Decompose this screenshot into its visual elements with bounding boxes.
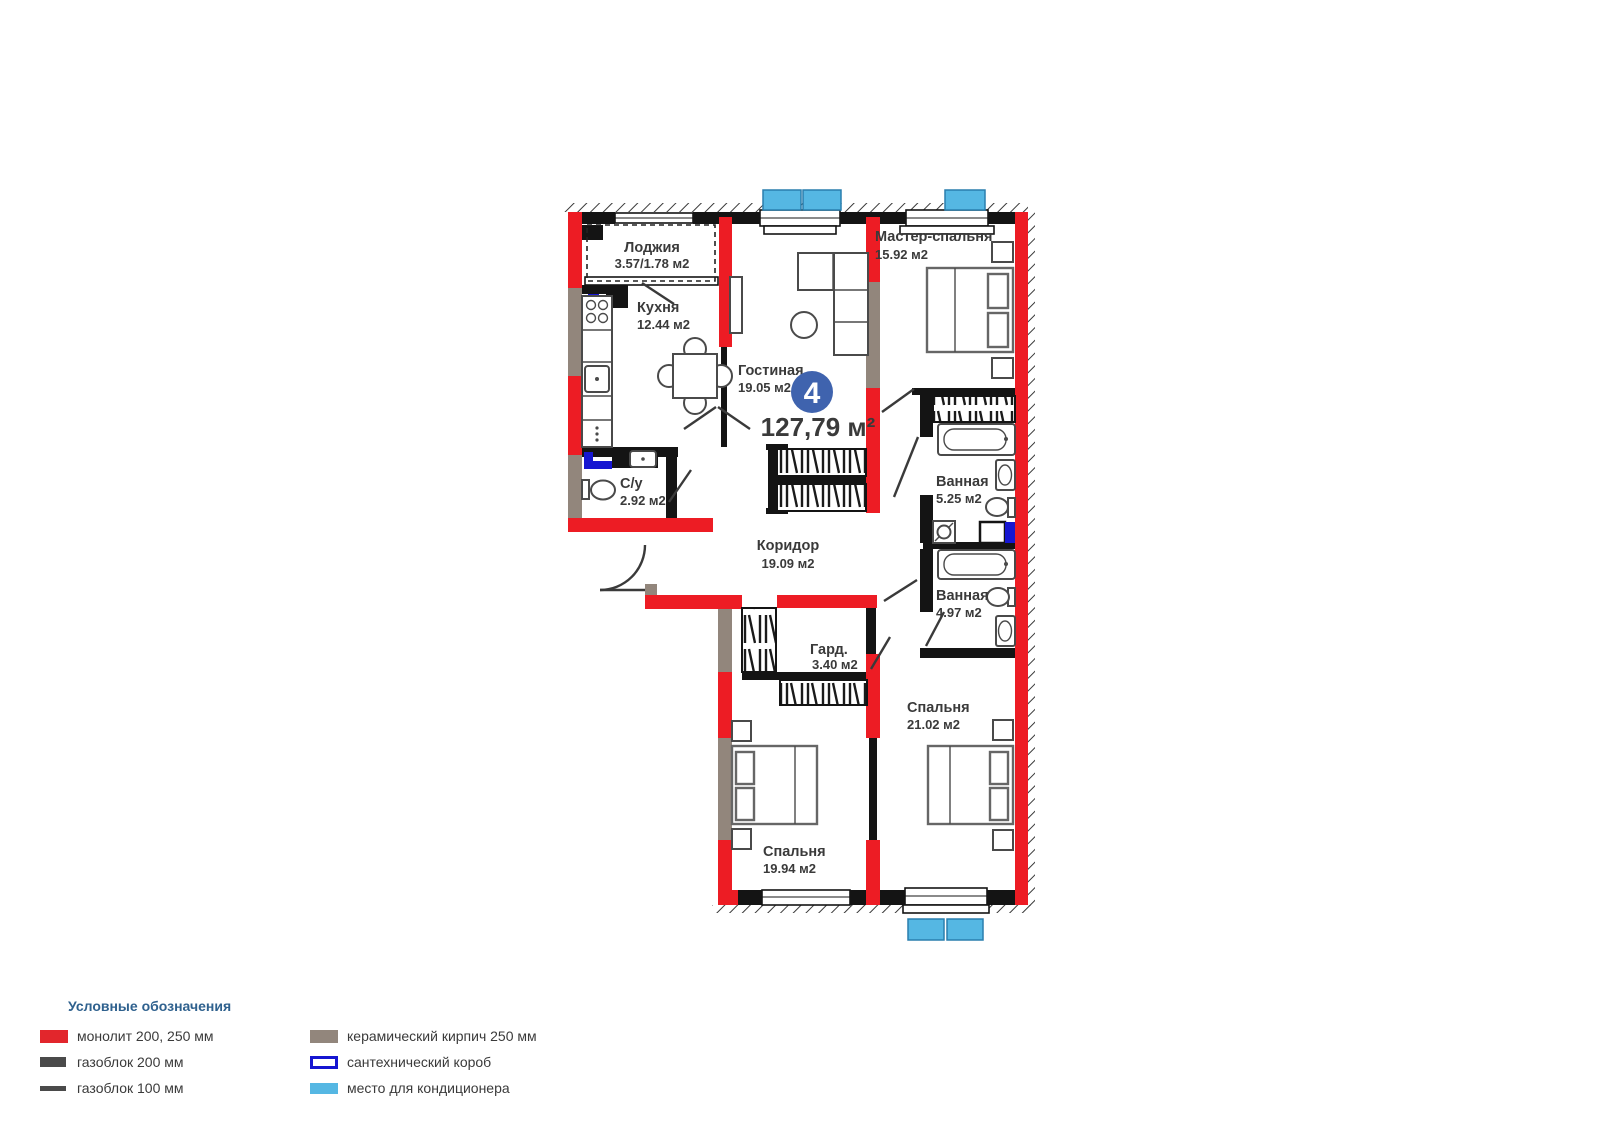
legend-item-label: место для кондиционера bbox=[347, 1080, 510, 1096]
room-area-closet: 3.40 м2 bbox=[812, 657, 858, 672]
sofa-icon bbox=[798, 253, 868, 355]
ac-unit-icon bbox=[908, 919, 944, 940]
wc-sink-icon bbox=[612, 449, 658, 468]
door-swing bbox=[884, 580, 917, 601]
room-area-bedroom-right: 21.02 м2 bbox=[907, 717, 960, 732]
bathtub-icon bbox=[938, 550, 1015, 579]
legend-item-monolith: монолит 200, 250 мм bbox=[40, 1023, 310, 1049]
room-label-wc: С/у bbox=[620, 476, 643, 492]
nightstand-icon bbox=[732, 721, 751, 741]
bed-icon bbox=[732, 746, 817, 824]
legend-grid: монолит 200, 250 мм газоблок 200 мм газо… bbox=[40, 1023, 537, 1101]
nightstand-icon bbox=[992, 242, 1013, 262]
swatch-box bbox=[310, 1083, 338, 1094]
plumbing-box-icon bbox=[980, 522, 1015, 543]
entrance-door-icon bbox=[600, 545, 645, 590]
swatch-box bbox=[40, 1086, 68, 1091]
legend-item-label: керамический кирпич 250 мм bbox=[347, 1028, 537, 1044]
room-label-living: Гостиная bbox=[738, 363, 804, 379]
room-label-bathroom-1: Ванная bbox=[936, 474, 989, 490]
legend-item-ceramic-brick: керамический кирпич 250 мм bbox=[310, 1023, 537, 1049]
legend-title: Условные обозначения bbox=[40, 998, 537, 1014]
floor-plan: Лоджия 3.57/1.78 м2 Кухня 12.44 м2 Гости… bbox=[0, 0, 1600, 1131]
room-label-bedroom-left: Спальня bbox=[763, 844, 826, 860]
room-area-corridor: 19.09 м2 bbox=[762, 556, 815, 571]
bedroom-wardrobe-icon bbox=[780, 680, 867, 705]
toilet-icon bbox=[582, 480, 615, 500]
bathroom-sink-icon bbox=[996, 616, 1015, 646]
room-label-bedroom-right: Спальня bbox=[907, 700, 970, 716]
kitchen-sink-icon bbox=[585, 366, 609, 392]
room-area-master: 15.92 м2 bbox=[875, 247, 928, 262]
monolith-swatch bbox=[40, 1030, 68, 1043]
bathroom-wardrobe-icon bbox=[933, 396, 1015, 422]
gasblock-200-swatch bbox=[40, 1057, 66, 1067]
bathroom-sink-icon bbox=[996, 460, 1015, 490]
legend-item-ac-place: место для кондиционера bbox=[310, 1075, 537, 1101]
bedroom-window-left bbox=[762, 890, 850, 905]
legend-item-label: газоблок 100 мм bbox=[77, 1080, 184, 1096]
room-label-corridor: Коридор bbox=[757, 538, 820, 554]
nightstand-icon bbox=[993, 830, 1013, 850]
room-label-loggia: Лоджия bbox=[624, 240, 680, 256]
tv-stand-icon bbox=[730, 277, 742, 333]
ac-unit-icon bbox=[763, 190, 801, 210]
unit-number: 4 bbox=[804, 377, 821, 410]
loggia-window bbox=[615, 213, 693, 223]
plumbing-box-swatch bbox=[310, 1056, 338, 1069]
coffee-table-icon bbox=[791, 312, 817, 338]
legend-item-plumbing-box: сантехнический короб bbox=[310, 1049, 537, 1075]
room-area-loggia: 3.57/1.78 м2 bbox=[615, 256, 690, 271]
legend-item-label: монолит 200, 250 мм bbox=[77, 1028, 214, 1044]
washing-machine-icon bbox=[933, 521, 955, 543]
master-bed-icon bbox=[927, 268, 1013, 352]
ac-unit-icon bbox=[945, 190, 985, 210]
ac-unit-icon bbox=[947, 919, 983, 940]
nightstand-icon bbox=[732, 829, 751, 849]
ceramic-brick-swatch bbox=[310, 1030, 338, 1043]
room-area-bedroom-left: 19.94 м2 bbox=[763, 861, 816, 876]
room-area-living: 19.05 м2 bbox=[738, 380, 791, 395]
swatch-box bbox=[310, 1056, 338, 1069]
toilet-icon bbox=[986, 498, 1015, 517]
bathtub-icon bbox=[938, 424, 1015, 455]
ac-place-swatch bbox=[310, 1083, 338, 1094]
nightstand-icon bbox=[992, 358, 1013, 378]
room-label-kitchen: Кухня bbox=[637, 300, 679, 316]
room-area-kitchen: 12.44 м2 bbox=[637, 317, 690, 332]
swatch-box bbox=[40, 1057, 68, 1067]
floor-plan-page: Лоджия 3.57/1.78 м2 Кухня 12.44 м2 Гости… bbox=[0, 0, 1600, 1131]
legend-item-label: газоблок 200 мм bbox=[77, 1054, 184, 1070]
room-area-wc: 2.92 м2 bbox=[620, 493, 666, 508]
legend-column-left: монолит 200, 250 мм газоблок 200 мм газо… bbox=[40, 1023, 310, 1101]
legend-column-right: керамический кирпич 250 мм сантехнически… bbox=[310, 1023, 537, 1101]
bed-icon bbox=[928, 746, 1013, 824]
swatch-box bbox=[40, 1030, 68, 1043]
room-label-closet: Гард. bbox=[810, 642, 848, 658]
door-swing bbox=[882, 389, 914, 412]
gasblock-100-swatch bbox=[40, 1086, 66, 1091]
room-label-master: Мастер-спальня bbox=[875, 229, 992, 245]
toilet-icon bbox=[987, 588, 1015, 606]
swatch-box bbox=[310, 1030, 338, 1043]
ac-unit-icon bbox=[803, 190, 841, 210]
nightstand-icon bbox=[993, 720, 1013, 740]
living-room-window bbox=[760, 210, 840, 234]
bedroom-window-right bbox=[903, 888, 989, 913]
legend: Условные обозначения монолит 200, 250 мм… bbox=[40, 998, 537, 1101]
room-area-bathroom-1: 5.25 м2 bbox=[936, 491, 982, 506]
room-label-bathroom-2: Ванная bbox=[936, 588, 989, 604]
legend-item-gasblock-200: газоблок 200 мм bbox=[40, 1049, 310, 1075]
corridor-wardrobe-icon bbox=[766, 444, 866, 514]
closet-wardrobe-icon bbox=[742, 608, 776, 672]
legend-item-label: сантехнический короб bbox=[347, 1054, 491, 1070]
fridge-icon bbox=[595, 426, 598, 441]
legend-item-gasblock-100: газоблок 100 мм bbox=[40, 1075, 310, 1101]
total-area: 127,79 м² bbox=[761, 412, 876, 442]
room-area-bathroom-2: 4.97 м2 bbox=[936, 605, 982, 620]
door-swing bbox=[894, 437, 918, 497]
dining-table-icon bbox=[658, 338, 732, 414]
